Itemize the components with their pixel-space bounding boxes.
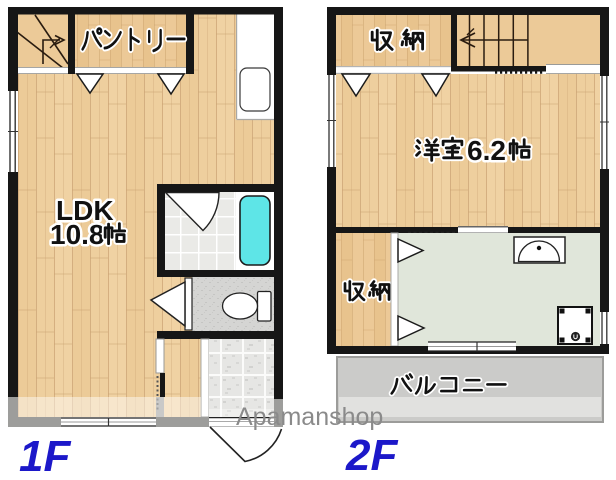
svg-text:Apamanshop: Apamanshop [236,403,383,431]
svg-text:2F: 2F [345,431,398,480]
svg-text:1F: 1F [19,432,71,480]
svg-text:10.8: 10.8 [50,219,105,250]
svg-text:6.2: 6.2 [467,135,506,166]
